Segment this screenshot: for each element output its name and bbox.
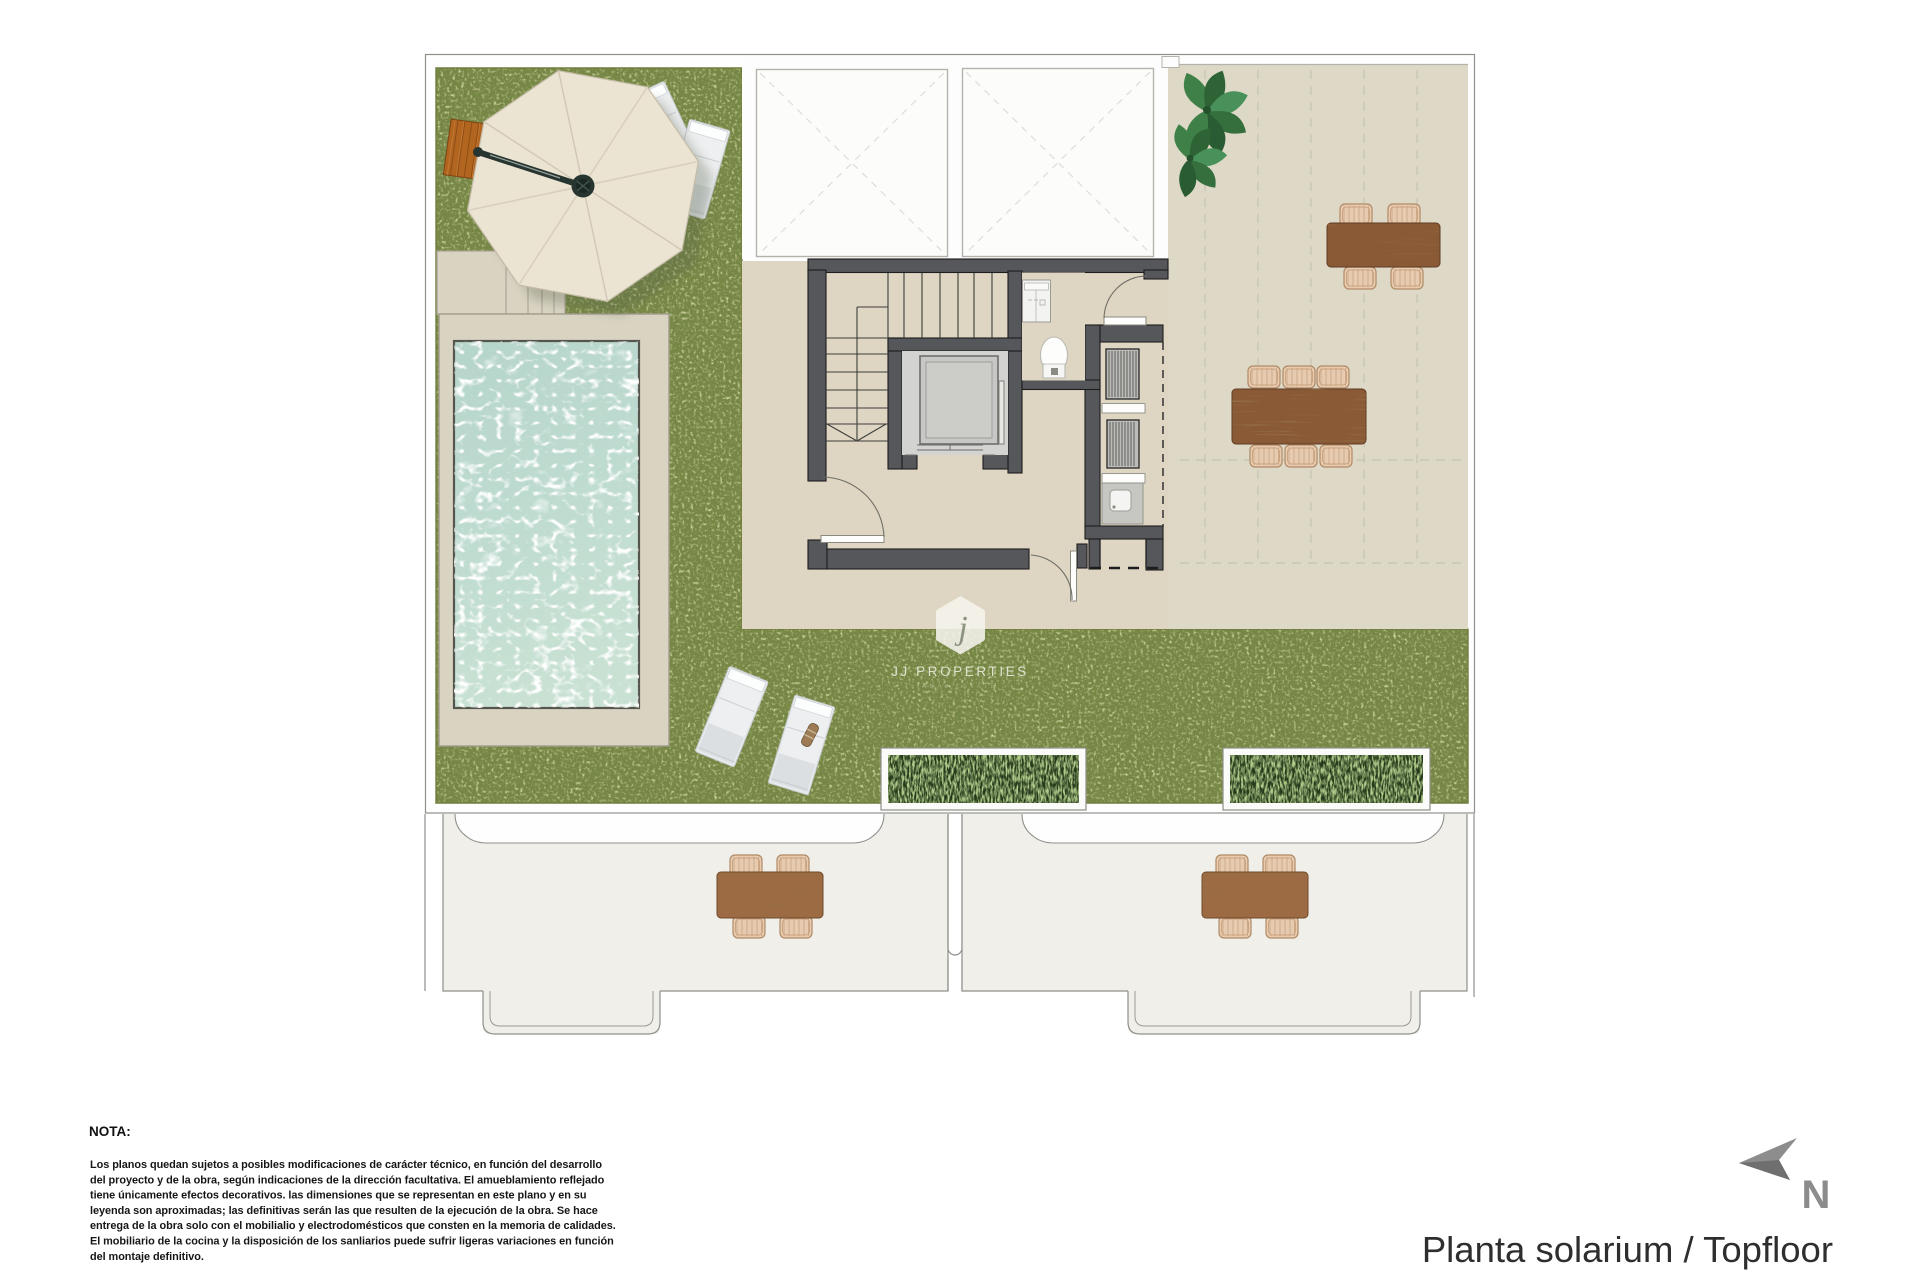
svg-text:El mobiliario de la cocina y l: El mobiliario de la cocina y la disposic… xyxy=(90,1236,614,1248)
svg-text:N: N xyxy=(1802,1173,1831,1217)
svg-text:del montaje definitivo.: del montaje definitivo. xyxy=(90,1251,204,1263)
svg-text:Los planos quedan sujetos a po: Los planos quedan sujetos a posibles mod… xyxy=(90,1159,602,1171)
svg-text:entrega de la obra solo con el: entrega de la obra solo con el mobiliali… xyxy=(90,1220,616,1232)
svg-text:JJ PROPERTIES: JJ PROPERTIES xyxy=(891,664,1029,679)
svg-text:del proyecto y de la obra, seg: del proyecto y de la obra, según indicac… xyxy=(90,1174,605,1186)
svg-text:NOTA:: NOTA: xyxy=(89,1124,131,1139)
svg-text:REAL ESTATE: REAL ESTATE xyxy=(922,683,998,690)
svg-text:tiene únicamente efectos decor: tiene únicamente efectos decorativos. la… xyxy=(90,1190,586,1202)
svg-text:leyenda son aproximadas; las d: leyenda son aproximadas; las definitivas… xyxy=(90,1205,598,1217)
svg-text:Planta solarium / Topfloor: Planta solarium / Topfloor xyxy=(1422,1229,1833,1270)
